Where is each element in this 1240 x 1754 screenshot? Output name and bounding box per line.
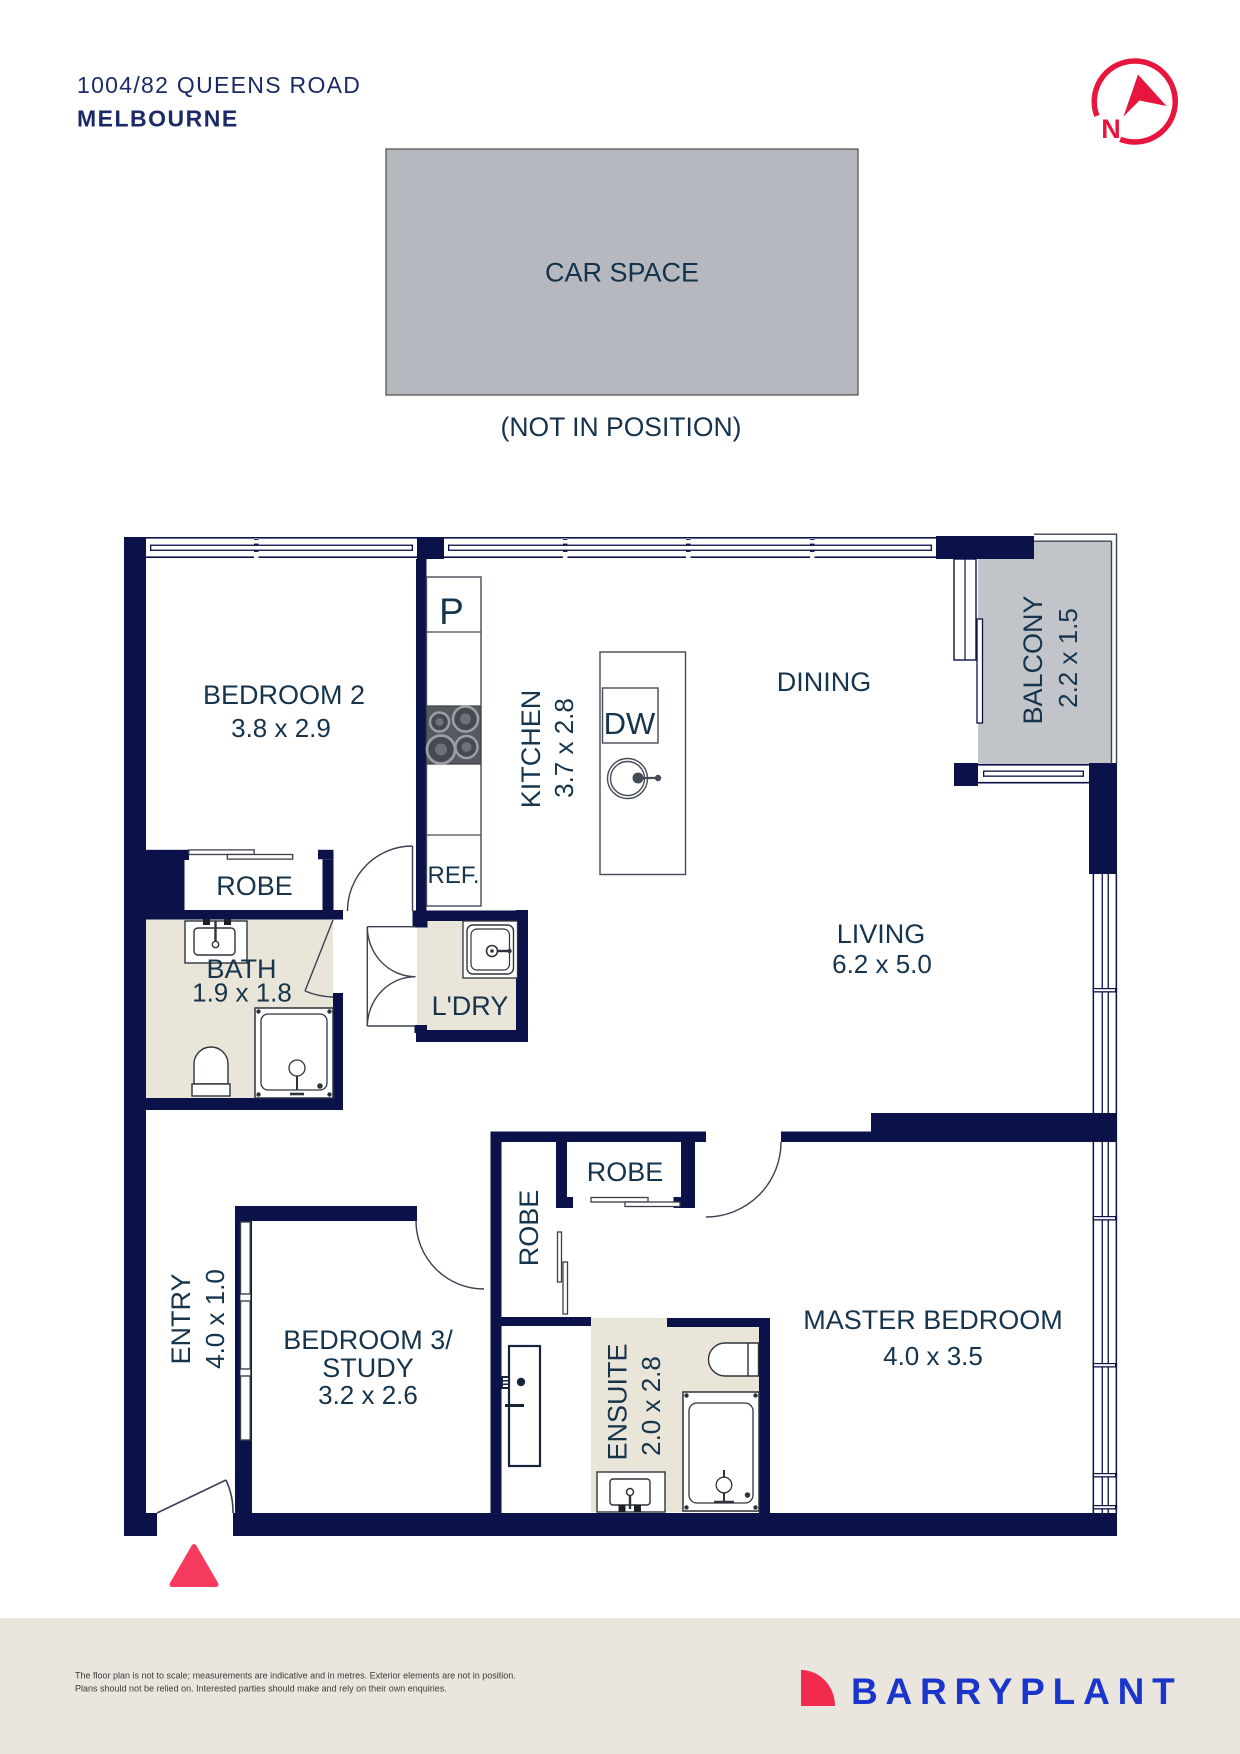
svg-text:L'DRY: L'DRY xyxy=(432,991,509,1021)
svg-text:REF.: REF. xyxy=(427,862,479,889)
svg-text:4.0 x 3.5: 4.0 x 3.5 xyxy=(883,1341,983,1371)
svg-text:The floor plan is not to scale: The floor plan is not to scale; measurem… xyxy=(75,1671,516,1681)
svg-text:1.9 x 1.8: 1.9 x 1.8 xyxy=(192,978,292,1008)
svg-text:2.0 x 2.8: 2.0 x 2.8 xyxy=(636,1356,666,1456)
svg-text:ENTRY: ENTRY xyxy=(166,1273,196,1364)
svg-text:N: N xyxy=(1101,114,1121,144)
svg-text:BEDROOM 2: BEDROOM 2 xyxy=(203,680,365,710)
svg-text:6.2 x 5.0: 6.2 x 5.0 xyxy=(832,949,932,979)
svg-text:1004/82 QUEENS ROAD: 1004/82 QUEENS ROAD xyxy=(77,72,361,98)
svg-text:ENSUITE: ENSUITE xyxy=(603,1343,633,1460)
svg-text:CAR SPACE: CAR SPACE xyxy=(545,258,699,288)
svg-text:3.8 x 2.9: 3.8 x 2.9 xyxy=(231,713,331,743)
svg-text:BARRYPLANT: BARRYPLANT xyxy=(851,1671,1183,1712)
svg-text:BALCONY: BALCONY xyxy=(1018,595,1048,724)
svg-text:LIVING: LIVING xyxy=(837,919,926,949)
svg-text:3.7 x 2.8: 3.7 x 2.8 xyxy=(549,698,579,798)
svg-text:KITCHEN: KITCHEN xyxy=(516,690,546,809)
svg-text:DINING: DINING xyxy=(777,667,872,697)
svg-text:2.2 x 1.5: 2.2 x 1.5 xyxy=(1053,608,1083,708)
svg-text:4.0 x 1.0: 4.0 x 1.0 xyxy=(200,1269,230,1369)
svg-text:(NOT IN POSITION): (NOT IN POSITION) xyxy=(501,412,742,442)
svg-text:Plans should not be relied on.: Plans should not be relied on. Intereste… xyxy=(75,1684,447,1694)
svg-text:ROBE: ROBE xyxy=(216,871,293,901)
svg-text:MASTER BEDROOM: MASTER BEDROOM xyxy=(803,1305,1063,1335)
svg-text:STUDY: STUDY xyxy=(322,1353,414,1383)
svg-text:MELBOURNE: MELBOURNE xyxy=(77,106,239,132)
svg-text:ROBE: ROBE xyxy=(514,1190,544,1267)
svg-text:ROBE: ROBE xyxy=(587,1157,664,1187)
svg-text:BEDROOM 3/: BEDROOM 3/ xyxy=(283,1325,453,1355)
svg-text:P: P xyxy=(439,591,464,632)
svg-text:3.2 x 2.6: 3.2 x 2.6 xyxy=(318,1380,418,1410)
svg-text:DW: DW xyxy=(604,706,656,741)
